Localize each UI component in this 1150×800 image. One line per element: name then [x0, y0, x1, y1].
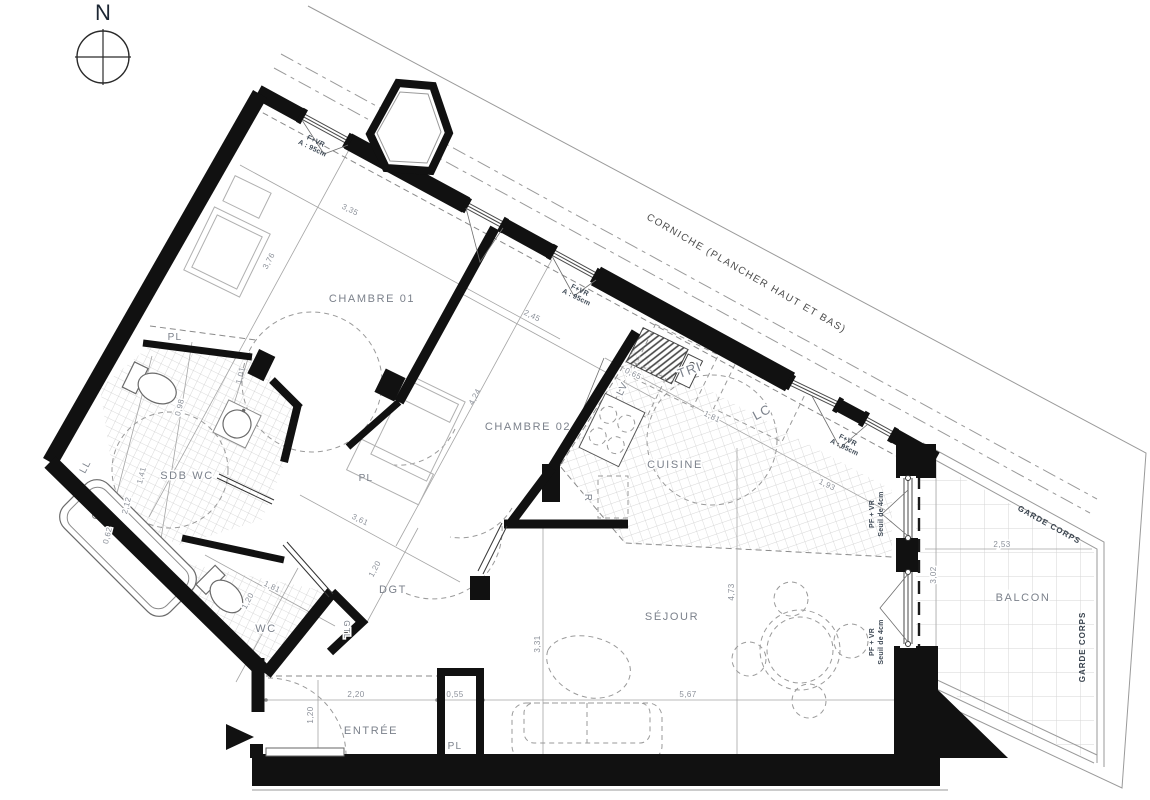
pfvr-1-s: Seuil de 4cm: [878, 491, 885, 536]
dim-331: 3,31: [533, 635, 542, 652]
label-balcon: BALCON: [996, 592, 1051, 604]
dim-302: 3,02: [929, 566, 938, 583]
entry-arrow: [226, 724, 254, 750]
pfvr-1: PF + VR: [869, 500, 876, 528]
dining-table: [732, 582, 868, 718]
floorplan-page: CORNICHE (PLANCHER HAUT ET BAS) GARDE CO…: [0, 0, 1150, 800]
floorplan-drawing: CORNICHE (PLANCHER HAUT ET BAS) GARDE CO…: [0, 0, 1150, 800]
garde-corps-label-right: GARDE CORPS: [1078, 612, 1087, 683]
dim-376: 3,76: [261, 251, 277, 271]
label-dgt: DGT: [379, 584, 407, 596]
north-letter: N: [95, 0, 111, 25]
dim-253: 2,53: [993, 540, 1010, 549]
dim-120-entree: 1,20: [306, 706, 315, 723]
label-chambre02: CHAMBRE 02: [485, 421, 571, 433]
compass: N: [75, 0, 131, 85]
label-wc: WC: [255, 623, 277, 635]
label-r: R: [582, 494, 593, 502]
pfvr-2: PF + VR: [869, 628, 876, 656]
facade-inner-dash: [254, 108, 926, 472]
dim-335: 3,35: [340, 202, 360, 218]
dim-361: 3,61: [350, 512, 370, 528]
dim-055: 0,55: [446, 690, 463, 699]
dim-424: 4,24: [467, 387, 483, 407]
dim-567: 5,67: [679, 690, 696, 699]
bottom-wall: [252, 754, 940, 786]
pfvr-2-s: Seuil de 4cm: [878, 619, 885, 664]
label-entree: ENTRÉE: [344, 724, 398, 737]
dim-220: 2,20: [347, 690, 364, 699]
bay-window: [370, 83, 449, 171]
dim-120-dgt: 1,20: [367, 559, 383, 579]
label-ll: LL: [78, 458, 94, 475]
dim-245: 2,45: [522, 308, 542, 324]
label-gtl: GTL: [342, 620, 351, 639]
label-chambre01: CHAMBRE 01: [329, 293, 415, 305]
sejour-window-wall: [896, 476, 918, 649]
nightstand-chambre01: [223, 176, 271, 219]
label-pl-chambre02: PL: [359, 473, 374, 484]
label-cuisine: CUISINE: [647, 459, 703, 471]
door-arc-chambre02: [450, 508, 512, 538]
label-pl-entree: PL: [448, 741, 463, 752]
closet-chambre02: [347, 439, 434, 505]
coffee-table: [547, 636, 631, 698]
dim-473: 4,73: [727, 583, 736, 600]
label-pl-chambre01: PL: [168, 332, 183, 343]
label-sdb-wc: SDB WC: [160, 470, 214, 482]
label-sejour: SÉJOUR: [645, 610, 699, 623]
